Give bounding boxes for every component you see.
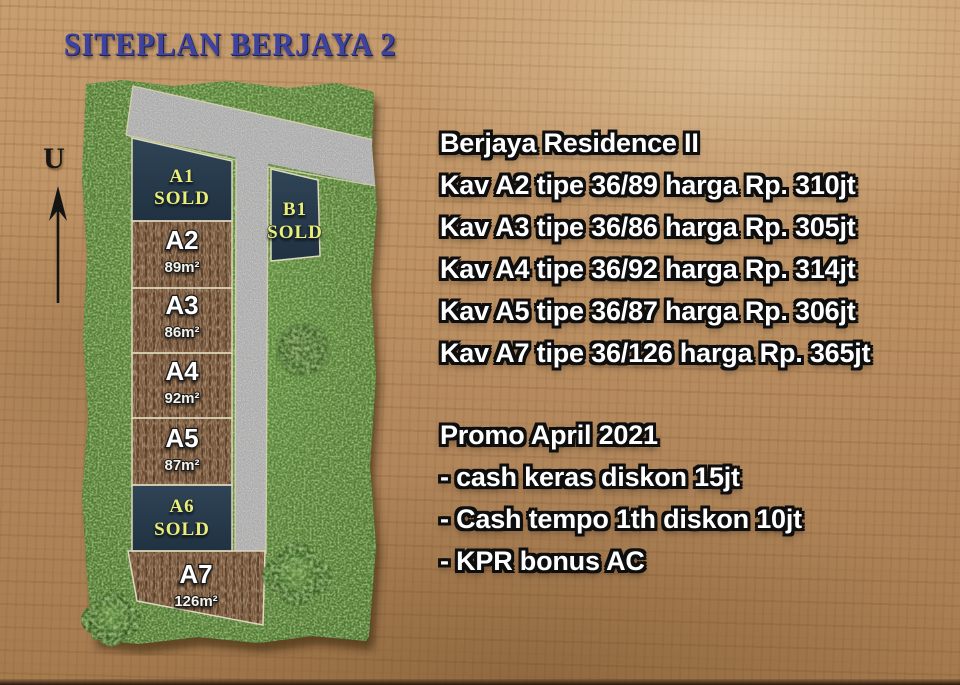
bush-icon: [275, 322, 331, 378]
listing-a3: Kav A3 tipe 36/86 harga Rp. 305jt: [440, 206, 870, 248]
info-panel: Berjaya Residence II Kav A2 tipe 36/89 h…: [440, 122, 870, 582]
project-name: Berjaya Residence II: [440, 122, 870, 164]
north-label: U: [36, 142, 72, 176]
lot-a3-area: 86m²: [164, 324, 199, 341]
listing-a5: Kav A5 tipe 36/87 harga Rp. 306jt: [440, 290, 870, 332]
lot-a1-label: A1: [169, 166, 194, 187]
lot-a6-label: A6: [169, 496, 194, 517]
poster-title: SITEPLAN BERJAYA 2: [60, 27, 400, 64]
listing-a4: Kav A4 tipe 36/92 harga Rp. 314jt: [440, 248, 870, 290]
promo-item-cash-tempo: - Cash tempo 1th diskon 10jt: [440, 498, 870, 540]
lot-a4-area: 92m²: [164, 390, 199, 407]
lot-a5-label: A5: [165, 423, 198, 453]
listing-a2: Kav A2 tipe 36/89 harga Rp. 310jt: [440, 164, 870, 206]
lot-b1-label: B1: [283, 199, 307, 220]
listing-a7: Kav A7 tipe 36/126 harga Rp. 365jt: [440, 332, 870, 374]
lot-a3-label: A3: [165, 290, 198, 320]
siteplan-map: A1 SOLD A2 89m² A3 86m² A4 92m² A5 87m² …: [78, 76, 388, 656]
promo-section: Promo April 2021 - cash keras diskon 15j…: [440, 414, 870, 582]
lot-a2-area: 89m²: [164, 259, 199, 276]
north-arrow-icon: [44, 183, 72, 308]
lot-a4-label: A4: [165, 356, 199, 386]
lot-a6-status: SOLD: [154, 519, 210, 540]
road-vertical: [235, 146, 268, 554]
lot-a1-status: SOLD: [154, 188, 210, 209]
lot-a6: [132, 485, 232, 551]
lot-a5-area: 87m²: [164, 457, 199, 474]
promo-item-kpr: - KPR bonus AC: [440, 540, 870, 582]
promo-heading: Promo April 2021: [440, 414, 870, 456]
lot-a2-label: A2: [165, 225, 198, 255]
promo-item-cash-keras: - cash keras diskon 15jt: [440, 456, 870, 498]
lot-b1-status: SOLD: [267, 222, 323, 243]
lot-a7-area: 126m²: [174, 593, 217, 610]
poster-background: SITEPLAN BERJAYA 2 U: [0, 0, 960, 685]
lot-a7-label: A7: [179, 559, 212, 589]
